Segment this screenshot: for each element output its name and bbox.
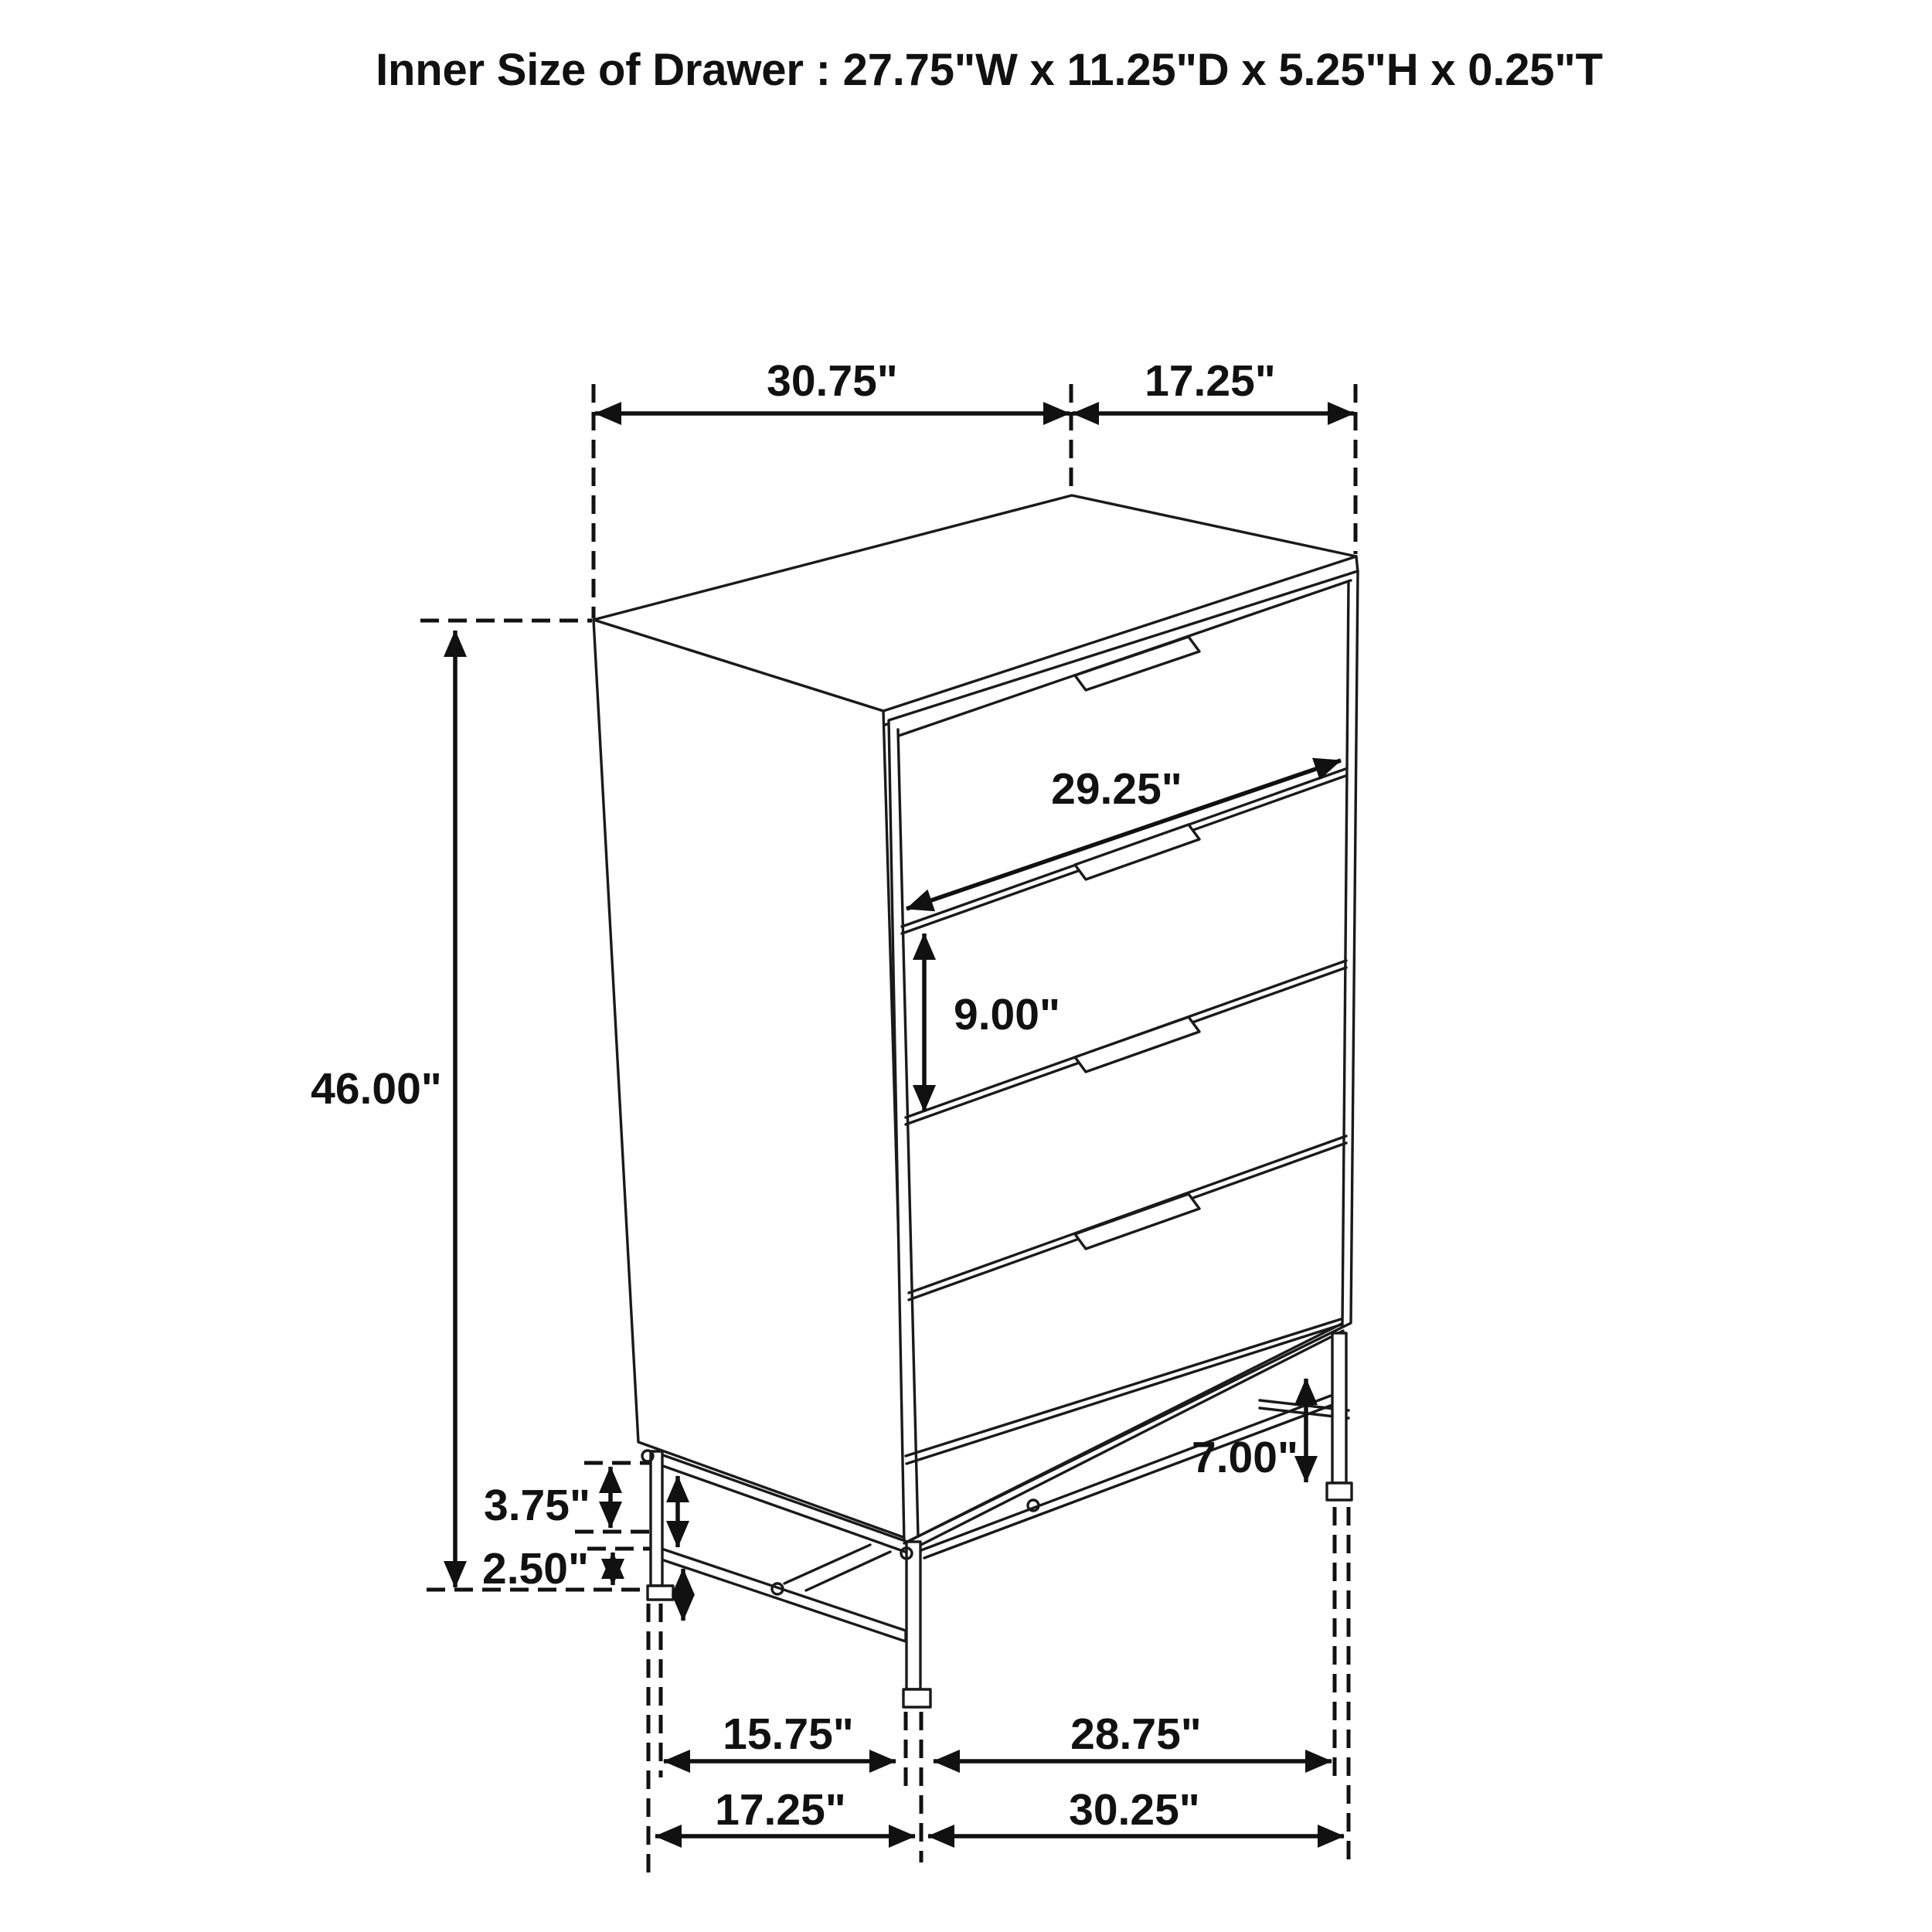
svg-text:9.00": 9.00" [954, 990, 1060, 1039]
svg-text:46.00": 46.00" [311, 1064, 442, 1114]
svg-text:7.00": 7.00" [1192, 1433, 1298, 1482]
svg-text:30.25": 30.25" [1069, 1785, 1200, 1835]
svg-text:29.25": 29.25" [1051, 764, 1182, 814]
svg-text:2.50": 2.50" [482, 1544, 589, 1594]
svg-text:17.25": 17.25" [1145, 356, 1276, 406]
svg-text:28.75": 28.75" [1070, 1709, 1202, 1759]
svg-text:30.75": 30.75" [767, 356, 898, 406]
svg-text:Inner Size of Drawer : 27.75"W: Inner Size of Drawer : 27.75"W x 11.25"D… [376, 45, 1603, 95]
svg-text:3.75": 3.75" [484, 1481, 590, 1530]
svg-text:17.25": 17.25" [715, 1785, 846, 1835]
svg-text:15.75": 15.75" [723, 1709, 854, 1759]
